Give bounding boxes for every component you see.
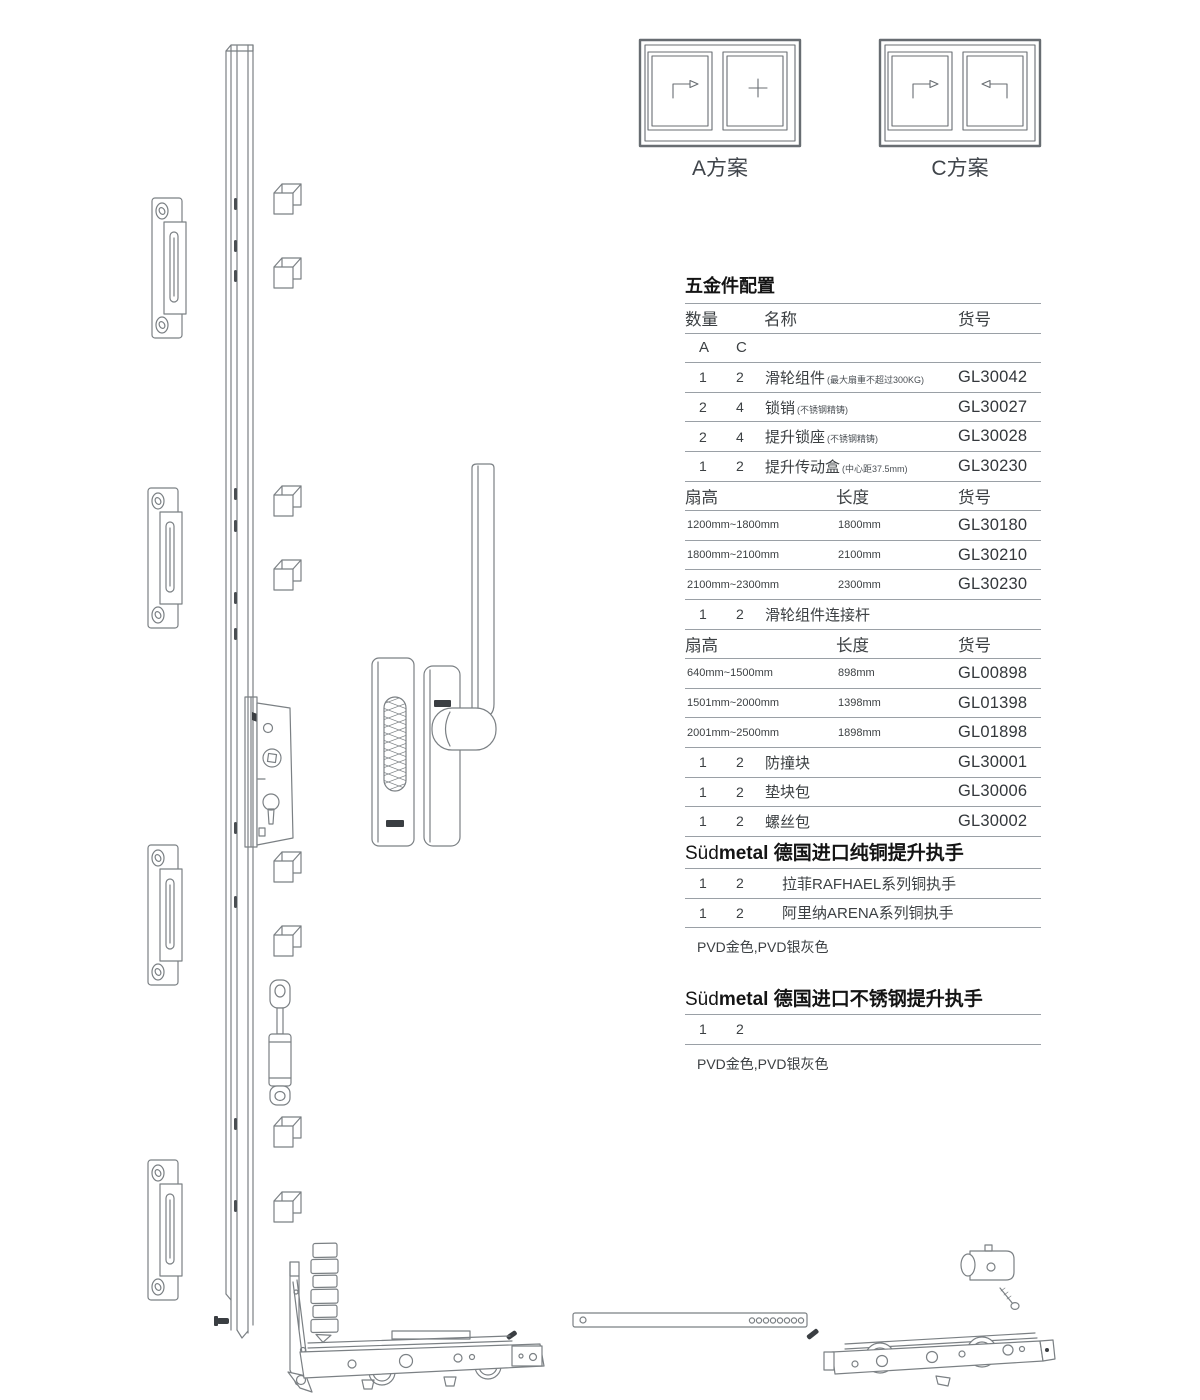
part-note: (不锈钢精铸)	[797, 405, 848, 415]
col-a-label: A	[685, 339, 736, 356]
part-sku: GL30180	[958, 516, 1041, 535]
stainless-handle-section: Südmetal 德国进口不锈钢提升执手 1 2 PVD金色,PVD银灰色	[685, 984, 1041, 1074]
qty-c: 2	[736, 754, 765, 770]
brand-light: Süd	[685, 989, 719, 1010]
part-sku: GL30002	[958, 812, 1041, 831]
strike-plate-drawing	[148, 488, 182, 628]
part-name: 垫块包	[765, 781, 958, 802]
sash-height-range: 1200mm~1800mm	[685, 519, 838, 531]
part-sku: GL30006	[958, 782, 1041, 801]
qty-a: 2	[685, 429, 736, 445]
strike-plate-drawing	[148, 1160, 182, 1300]
brand-bold: metal	[719, 989, 769, 1010]
col-qty-label: 数量	[685, 306, 764, 330]
length-value: 2100mm	[838, 549, 958, 561]
qty-a: 1	[685, 606, 736, 622]
qty-a: 1	[685, 754, 736, 770]
length-label: 长度	[836, 484, 958, 508]
sash-height-range: 2100mm~2300mm	[685, 579, 838, 591]
table-row: 1 2	[685, 1015, 1041, 1045]
lock-pin-icon	[214, 1316, 229, 1326]
qty-c: 2	[736, 369, 765, 385]
packer-block-drawing	[274, 560, 301, 590]
qty-a: 1	[685, 784, 736, 800]
length-value: 1898mm	[838, 727, 958, 739]
sash-height-range: 1800mm~2100mm	[685, 549, 838, 561]
part-name-text: 锁销	[765, 400, 795, 417]
table-row: 640mm~1500mm 898mm GL00898	[685, 659, 1041, 689]
section-title: Südmetal 德国进口不锈钢提升执手	[685, 984, 1041, 1015]
part-name: 阿里纳ARENA系列铜执手	[765, 902, 1041, 923]
part-name: 锁销(不锈钢精铸)	[765, 397, 958, 418]
length-label: 长度	[836, 632, 958, 656]
qty-a: 1	[685, 813, 736, 829]
packer-block-drawing	[274, 184, 301, 214]
catalog-page: A方案 C方案 五金件配置 数量 名称 货号 A C 1 2 滑轮组件(最大扇重…	[0, 0, 1200, 1400]
qty-c: 2	[736, 784, 765, 800]
gearbox-drawing	[245, 697, 293, 847]
length-value: 898mm	[838, 667, 958, 679]
brand-logo-mark	[434, 700, 451, 707]
part-sku: GL30210	[958, 546, 1041, 565]
sash-height-label: 扇高	[685, 484, 836, 508]
lift-handle-drawing	[424, 464, 496, 846]
finish-note: PVD金色,PVD银灰色	[685, 937, 1041, 957]
table-row: 1800mm~2100mm 2100mm GL30210	[685, 541, 1041, 571]
part-name: 提升锁座(不锈钢精铸)	[765, 426, 958, 447]
roller-carriage-right-drawing	[824, 1333, 1055, 1386]
brand-bold: metal	[719, 843, 769, 864]
packer-block-drawing	[274, 1192, 301, 1222]
part-sku: GL01398	[958, 694, 1041, 713]
sash-height-range: 640mm~1500mm	[685, 667, 838, 679]
packer-block-drawing	[274, 486, 301, 516]
brass-handle-section: Südmetal 德国进口纯铜提升执手 1 2 拉菲RAFHAEL系列铜执手 1…	[685, 838, 1041, 957]
part-name: 提升传动盒(中心距37.5mm)	[765, 456, 958, 477]
sku-label: 货号	[958, 484, 1041, 508]
part-sku: GL30230	[958, 457, 1041, 476]
part-name-text: 提升传动盒	[765, 459, 840, 476]
section-title: Südmetal 德国进口纯铜提升执手	[685, 838, 1041, 869]
part-sku: GL01898	[958, 723, 1041, 742]
sash-height-label: 扇高	[685, 632, 836, 656]
qty-c: 2	[736, 813, 765, 829]
sash-height-range: 2001mm~2500mm	[685, 727, 838, 739]
table-row: 2 4 锁销(不锈钢精铸) GL30027	[685, 393, 1041, 423]
table-row: 1 2 拉菲RAFHAEL系列铜执手	[685, 869, 1041, 899]
qty-a: 2	[685, 399, 736, 415]
plan-c-label: C方案	[880, 152, 1040, 182]
part-sku: GL30028	[958, 427, 1041, 446]
col-sku-label: 货号	[958, 306, 1041, 330]
packer-block-drawing	[274, 258, 301, 288]
part-name: 螺丝包	[765, 811, 958, 832]
part-note: (最大扇重不超过300KG)	[827, 375, 924, 385]
length-value: 2300mm	[838, 579, 958, 591]
part-name-text: 提升锁座	[765, 429, 825, 446]
part-name: 滑轮组件连接杆	[765, 604, 958, 625]
slide-arrow-left-icon	[982, 81, 1007, 99]
part-note: (不锈钢精铸)	[827, 434, 878, 444]
strike-plate-drawing	[152, 198, 186, 338]
qty-a: 1	[685, 905, 736, 921]
table-row: 2100mm~2300mm 2300mm GL30230	[685, 570, 1041, 600]
brand-light: Süd	[685, 843, 719, 864]
section-title-text: 德国进口不锈钢提升执手	[768, 989, 982, 1010]
brand-logo-mark	[386, 820, 404, 827]
table-row: 1 2 提升传动盒(中心距37.5mm) GL30230	[685, 452, 1041, 482]
table-row: 1200mm~1800mm 1800mm GL30180	[685, 511, 1041, 541]
screw-icon	[1000, 1288, 1019, 1309]
part-note: (中心距37.5mm)	[842, 464, 908, 474]
qty-c: 2	[736, 905, 765, 921]
finish-note: PVD金色,PVD银灰色	[685, 1054, 1041, 1074]
espagnolette-rail-drawing	[214, 45, 253, 1338]
table-row: 1 2 垫块包 GL30006	[685, 778, 1041, 808]
window-diagram-c	[880, 40, 1040, 146]
roller-carriage-left-drawing	[300, 1330, 544, 1389]
table-row: 1 2 滑轮组件连接杆	[685, 600, 1041, 630]
table-row: 2001mm~2500mm 1898mm GL01898	[685, 718, 1041, 748]
part-name-text: 滑轮组件连接杆	[765, 607, 870, 624]
part-name: 防撞块	[765, 752, 958, 773]
qty-c: 2	[736, 458, 765, 474]
part-name-text: 滑轮组件	[765, 370, 825, 387]
part-sku: GL30042	[958, 368, 1041, 387]
sash-height-range: 1501mm~2000mm	[685, 697, 838, 709]
end-cap-drawing	[961, 1245, 1014, 1280]
qty-c: 2	[736, 875, 765, 891]
section-title-text: 德国进口纯铜提升执手	[768, 843, 963, 864]
part-name-text: 防撞块	[765, 755, 810, 772]
connecting-bar-drawing	[573, 1313, 819, 1340]
packer-block-drawing	[274, 1117, 301, 1147]
table-title: 五金件配置	[685, 272, 1041, 304]
plan-a-label: A方案	[640, 152, 800, 182]
qty-c: 2	[736, 606, 765, 622]
qty-a: 1	[685, 458, 736, 474]
damper-drawing	[269, 980, 291, 1105]
packer-block-drawing	[274, 852, 301, 882]
length-table-header: 扇高 长度 货号	[685, 630, 1041, 660]
part-name-text: 螺丝包	[765, 814, 810, 831]
qty-c: 2	[736, 1021, 765, 1037]
qty-subheader-row: A C	[685, 334, 1041, 364]
part-name: 滑轮组件(最大扇重不超过300KG)	[765, 367, 958, 388]
window-diagram-a	[640, 40, 800, 146]
length-value: 1398mm	[838, 697, 958, 709]
table-row: 1 2 阿里纳ARENA系列铜执手	[685, 899, 1041, 929]
part-name: 拉菲RAFHAEL系列铜执手	[765, 873, 1041, 894]
qty-a: 1	[685, 875, 736, 891]
table-row: 1 2 螺丝包 GL30002	[685, 807, 1041, 837]
length-value: 1800mm	[838, 519, 958, 531]
fixed-plus-icon	[749, 79, 767, 97]
part-sku: GL00898	[958, 664, 1041, 683]
table-row: 1501mm~2000mm 1398mm GL01398	[685, 689, 1041, 719]
part-sku: GL30001	[958, 753, 1041, 772]
sku-label: 货号	[958, 632, 1041, 656]
table-row: 1 2 滑轮组件(最大扇重不超过300KG) GL30042	[685, 363, 1041, 393]
slide-arrow-icon	[673, 81, 698, 99]
table-header-row: 数量 名称 货号	[685, 304, 1041, 334]
qty-c: 4	[736, 429, 765, 445]
buffer-stack-drawing	[311, 1243, 338, 1342]
col-c-label: C	[736, 339, 765, 356]
part-name-text: 垫块包	[765, 784, 810, 801]
table-row: 2 4 提升锁座(不锈钢精铸) GL30028	[685, 422, 1041, 452]
strike-plate-drawing	[148, 845, 182, 985]
hardware-config-table: 五金件配置 数量 名称 货号 A C 1 2 滑轮组件(最大扇重不超过300KG…	[685, 272, 1041, 837]
col-name-label: 名称	[764, 306, 958, 330]
slide-arrow-right-icon	[913, 81, 938, 99]
part-sku: GL30027	[958, 398, 1041, 417]
qty-a: 1	[685, 369, 736, 385]
flush-pull-drawing	[372, 658, 414, 846]
qty-c: 4	[736, 399, 765, 415]
part-sku: GL30230	[958, 575, 1041, 594]
qty-a: 1	[685, 1021, 736, 1037]
table-row: 1 2 防撞块 GL30001	[685, 748, 1041, 778]
length-table-header: 扇高 长度 货号	[685, 482, 1041, 512]
packer-block-drawing	[274, 926, 301, 956]
